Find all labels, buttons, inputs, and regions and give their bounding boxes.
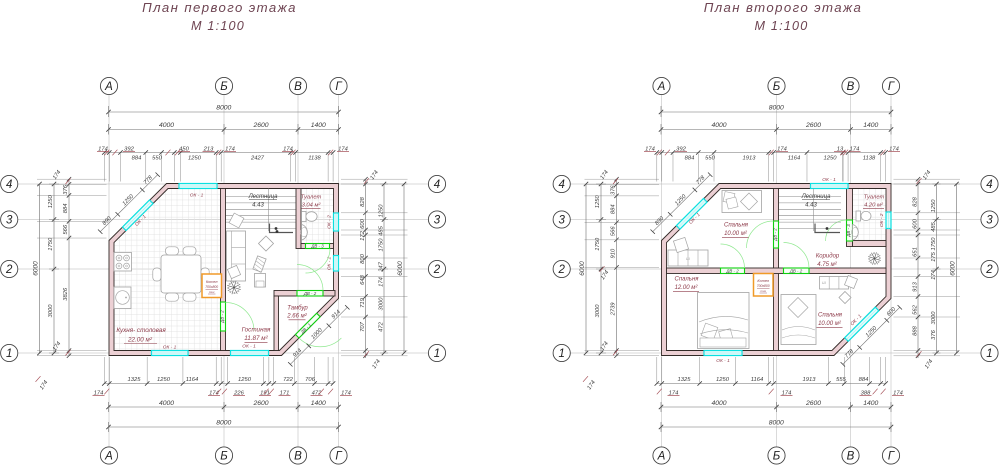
svg-text:884: 884	[611, 204, 617, 214]
svg-text:1400: 1400	[863, 400, 878, 407]
svg-text:1750: 1750	[48, 237, 54, 251]
svg-text:1250: 1250	[379, 204, 385, 218]
svg-text:1250: 1250	[48, 195, 54, 209]
svg-text:3000: 3000	[379, 297, 385, 311]
svg-text:719: 719	[360, 297, 366, 307]
svg-text:2739: 2739	[611, 302, 617, 317]
svg-text:Гостиная: Гостиная	[242, 327, 271, 334]
svg-text:А: А	[104, 81, 113, 93]
svg-text:1250: 1250	[931, 199, 937, 213]
svg-text:1164: 1164	[751, 377, 763, 383]
svg-text:472: 472	[379, 321, 385, 331]
svg-text:884: 884	[859, 377, 869, 383]
svg-text:План второго этажа: План второго этажа	[704, 0, 862, 15]
svg-text:План первого этажа: План первого этажа	[142, 0, 297, 15]
svg-text:3: 3	[6, 215, 13, 227]
svg-text:ДВ - 3: ДВ - 3	[846, 224, 851, 238]
svg-text:М 1:100: М 1:100	[191, 19, 245, 33]
svg-text:174: 174	[931, 270, 937, 280]
svg-text:485: 485	[931, 221, 937, 231]
svg-text:1913: 1913	[803, 377, 817, 383]
svg-text:3000: 3000	[931, 311, 937, 325]
svg-text:888: 888	[913, 325, 919, 335]
svg-text:3: 3	[986, 215, 993, 227]
svg-text:555: 555	[836, 377, 846, 383]
svg-text:4.43: 4.43	[252, 203, 264, 209]
svg-text:2600: 2600	[805, 400, 821, 407]
svg-text:Б: Б	[773, 451, 781, 463]
svg-text:Кухня- столовая: Кухня- столовая	[116, 327, 166, 334]
svg-text:8000: 8000	[216, 420, 231, 427]
svg-text:884: 884	[685, 156, 695, 162]
svg-text:Спальня: Спальня	[724, 223, 749, 229]
svg-text:6000: 6000	[950, 261, 957, 276]
svg-text:1325: 1325	[128, 377, 142, 383]
svg-text:22.00 м²: 22.00 м²	[127, 337, 153, 344]
svg-text:2: 2	[985, 264, 993, 276]
svg-text:ОК - 2: ОК - 2	[879, 213, 885, 227]
svg-text:Г: Г	[335, 81, 342, 93]
svg-text:А: А	[104, 451, 113, 463]
svg-text:562: 562	[913, 304, 919, 314]
svg-text:Туалет: Туалет	[864, 195, 885, 201]
svg-text:700х800: 700х800	[205, 285, 218, 289]
svg-text:1325: 1325	[678, 377, 692, 383]
svg-text:Спальня: Спальня	[675, 277, 700, 283]
svg-text:1250: 1250	[824, 156, 838, 162]
svg-text:2: 2	[433, 264, 441, 276]
svg-text:1250: 1250	[716, 377, 730, 383]
svg-text:ОК - 1: ОК - 1	[190, 192, 204, 198]
svg-text:1: 1	[434, 348, 440, 360]
svg-text:2600: 2600	[805, 122, 821, 129]
svg-text:Котел: Котел	[757, 279, 769, 283]
svg-text:2: 2	[5, 264, 13, 276]
svg-text:3000: 3000	[48, 304, 54, 318]
svg-text:2600: 2600	[252, 122, 268, 129]
svg-text:550: 550	[152, 156, 162, 162]
svg-text:ОК - 2: ОК - 2	[327, 215, 333, 229]
svg-text:2600: 2600	[252, 400, 268, 407]
svg-text:Лестница: Лестница	[801, 194, 832, 200]
svg-text:3.04 м²: 3.04 м²	[302, 203, 322, 209]
svg-text:1250: 1250	[238, 377, 252, 383]
svg-text:376: 376	[931, 329, 937, 339]
svg-text:В: В	[294, 81, 302, 93]
svg-text:М 1:100: М 1:100	[755, 19, 809, 33]
svg-text:828: 828	[360, 196, 366, 206]
svg-text:Тамбур: Тамбур	[287, 306, 308, 312]
svg-text:Туалет: Туалет	[301, 195, 322, 201]
svg-text:1913: 1913	[743, 156, 757, 162]
svg-text:Спальня: Спальня	[818, 313, 843, 319]
svg-text:В: В	[294, 451, 302, 463]
svg-text:Г: Г	[888, 451, 895, 463]
svg-text:4: 4	[434, 179, 440, 191]
svg-text:ОК - 1: ОК - 1	[716, 358, 730, 364]
svg-text:884: 884	[63, 204, 69, 214]
svg-text:1750: 1750	[379, 238, 385, 252]
svg-text:Б: Б	[220, 451, 228, 463]
svg-text:ОК - 1: ОК - 1	[242, 343, 256, 349]
svg-text:1138: 1138	[308, 156, 321, 162]
svg-text:4: 4	[986, 179, 992, 191]
svg-text:910: 910	[611, 248, 617, 258]
svg-text:ОК - 1: ОК - 1	[822, 177, 836, 183]
svg-text:174: 174	[379, 277, 385, 287]
svg-text:1164: 1164	[788, 156, 800, 162]
svg-text:566: 566	[611, 226, 617, 236]
svg-text:4.75 м²: 4.75 м²	[817, 262, 837, 268]
svg-text:1400: 1400	[863, 122, 878, 129]
svg-text:485: 485	[379, 225, 385, 235]
svg-text:1400: 1400	[311, 122, 326, 129]
svg-text:В: В	[847, 451, 855, 463]
svg-text:1750: 1750	[931, 237, 937, 251]
svg-text:10.00 м²: 10.00 м²	[724, 231, 748, 237]
svg-text:2427: 2427	[250, 156, 265, 162]
svg-text:700х800: 700х800	[757, 284, 770, 288]
svg-text:ДВ - 2: ДВ - 2	[220, 310, 225, 324]
svg-text:4: 4	[6, 179, 12, 191]
svg-text:Ш: Ш	[686, 256, 690, 261]
svg-text:6000: 6000	[579, 261, 586, 276]
svg-text:1164: 1164	[186, 377, 198, 383]
svg-text:10.00 м²: 10.00 м²	[818, 321, 842, 327]
svg-text:1250: 1250	[595, 195, 601, 209]
svg-text:ДВ - 2: ДВ - 2	[725, 269, 739, 274]
svg-text:722: 722	[283, 377, 293, 383]
svg-text:8000: 8000	[769, 105, 784, 112]
svg-text:648: 648	[360, 274, 366, 284]
svg-text:1250: 1250	[157, 377, 171, 383]
svg-text:12.00 м²: 12.00 м²	[675, 285, 699, 291]
svg-text:8000: 8000	[769, 420, 784, 427]
svg-text:11.87 м²: 11.87 м²	[244, 335, 268, 342]
svg-text:Ш: Ш	[822, 280, 826, 285]
svg-text:706: 706	[305, 377, 315, 383]
svg-text:Б: Б	[220, 81, 228, 93]
svg-text:4000: 4000	[711, 122, 726, 129]
svg-text:1: 1	[6, 348, 12, 360]
svg-text:4000: 4000	[159, 122, 174, 129]
svg-text:1: 1	[558, 348, 564, 360]
svg-text:ДВ - 2: ДВ - 2	[303, 291, 317, 296]
svg-text:тих: тих	[209, 290, 215, 294]
svg-text:376: 376	[611, 185, 617, 195]
svg-text:А: А	[657, 81, 666, 93]
svg-text:Котел: Котел	[206, 280, 218, 284]
svg-text:тих: тих	[760, 289, 766, 293]
svg-text:1: 1	[986, 348, 992, 360]
svg-text:ДВ - 2: ДВ - 2	[789, 269, 803, 274]
svg-text:В: В	[847, 81, 855, 93]
svg-text:4000: 4000	[711, 400, 726, 407]
svg-text:550: 550	[705, 156, 715, 162]
svg-text:ДВ - 3: ДВ - 3	[310, 244, 324, 249]
svg-text:6000: 6000	[33, 261, 40, 276]
svg-text:ДВ - 2: ДВ - 2	[773, 228, 778, 242]
svg-text:376: 376	[63, 184, 69, 194]
svg-text:4.43: 4.43	[805, 203, 817, 209]
svg-text:600: 600	[913, 218, 919, 228]
svg-text:4.20 м²: 4.20 м²	[864, 203, 884, 209]
svg-text:Лестница: Лестница	[248, 194, 279, 200]
svg-text:Г: Г	[335, 451, 342, 463]
svg-text:6000: 6000	[397, 261, 404, 276]
svg-text:1750: 1750	[595, 237, 601, 251]
svg-text:8000: 8000	[216, 105, 231, 112]
svg-text:1138: 1138	[863, 156, 876, 162]
svg-text:884: 884	[132, 156, 142, 162]
svg-text:2: 2	[557, 264, 565, 276]
svg-text:ОК - 2: ОК - 2	[327, 256, 333, 270]
svg-text:4: 4	[558, 179, 564, 191]
svg-text:828: 828	[913, 196, 919, 206]
svg-text:651: 651	[913, 247, 919, 257]
svg-text:ОК - 1: ОК - 1	[163, 344, 177, 350]
svg-text:566: 566	[63, 224, 69, 234]
svg-text:2.66 м²: 2.66 м²	[286, 314, 307, 320]
svg-text:Коридор: Коридор	[816, 254, 840, 260]
svg-text:3826: 3826	[63, 287, 69, 301]
svg-text:707: 707	[360, 321, 366, 331]
svg-text:1250: 1250	[188, 156, 202, 162]
svg-text:1400: 1400	[311, 400, 326, 407]
svg-text:175: 175	[931, 251, 937, 261]
svg-text:А: А	[657, 451, 666, 463]
svg-text:3: 3	[434, 215, 441, 227]
svg-text:4000: 4000	[159, 400, 174, 407]
svg-text:913: 913	[913, 281, 919, 291]
svg-text:247: 247	[379, 261, 385, 272]
svg-text:Г: Г	[888, 81, 895, 93]
svg-text:Б: Б	[773, 81, 781, 93]
svg-text:3: 3	[558, 215, 565, 227]
svg-text:600: 600	[360, 218, 366, 228]
svg-text:3000: 3000	[595, 304, 601, 318]
